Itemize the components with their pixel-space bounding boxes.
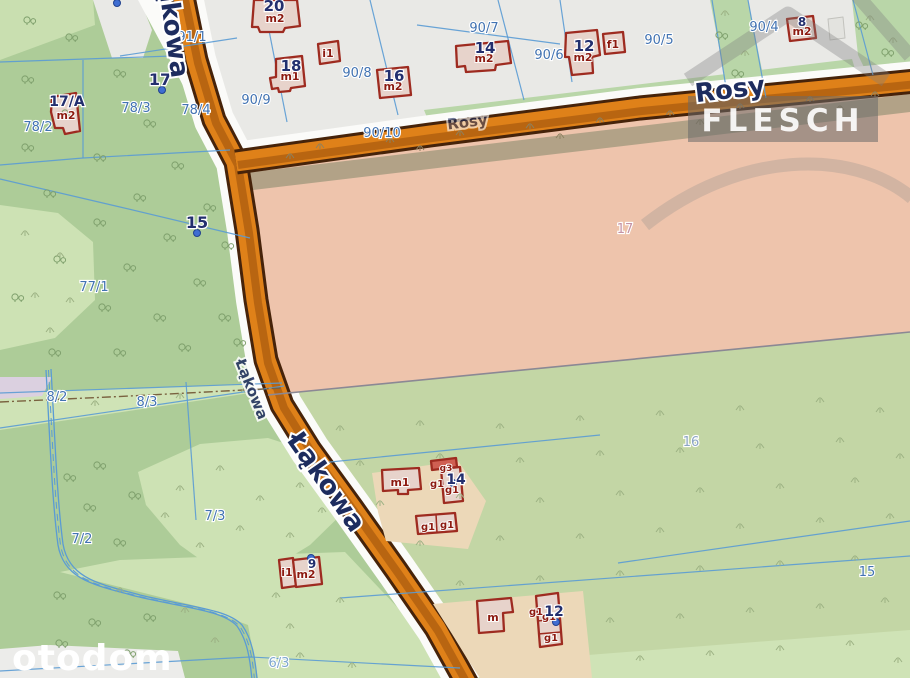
parcel-number-label: 7/2 (72, 532, 93, 547)
building-type-label: g1 (440, 520, 454, 531)
parcel-number-label: 15 (859, 565, 876, 580)
building-type-label: m2 (56, 109, 75, 122)
address-number-label: 16 (384, 67, 405, 85)
parcel-number-label: 78/2 (23, 120, 52, 135)
building-type-label: i1 (322, 47, 333, 60)
parcel-number-label: 8/3 (137, 395, 158, 410)
address-number-label: 18 (281, 57, 302, 75)
parcel-number-label: 77/1 (79, 280, 108, 295)
building-type-label: f1 (607, 38, 619, 51)
parcel-number-label: 8/2 (47, 390, 68, 405)
parcel-number-label: 90/5 (644, 33, 673, 48)
parcel-number-label: 90/4 (749, 20, 778, 35)
parcel-number-label: 78/3 (121, 101, 150, 116)
building-type-label: g1 (430, 479, 444, 490)
building-divider (436, 514, 437, 533)
address-number-label: 17/A (49, 94, 85, 110)
otodom-logo: otodom (12, 638, 173, 678)
flesch-watermark-text: FLESCH (701, 103, 864, 139)
map-canvas: FLESCH91/190/990/890/790/690/590/490/107… (0, 0, 910, 678)
parcel-number-label: 6/3 (269, 656, 290, 671)
building-type-label: i1 (281, 566, 292, 579)
building-type-label: g1 (544, 633, 558, 644)
parcel-number-label: 90/7 (469, 21, 498, 36)
address-number-label: 14 (446, 472, 466, 488)
building-type-label: g1 (421, 522, 435, 533)
address-point-dot (114, 0, 121, 7)
parcel-number-label: 17 (617, 222, 634, 237)
parcel-number-label: 90/8 (342, 66, 371, 81)
address-number-label: 12 (574, 37, 595, 55)
address-number-label: 12 (544, 604, 563, 620)
address-number-label: 15 (186, 213, 208, 232)
address-number-label: 14 (475, 39, 496, 57)
map-screenshot: FLESCH91/190/990/890/790/690/590/490/107… (0, 0, 910, 678)
building-type-label: m1 (390, 476, 409, 489)
parcel-number-label: 90/9 (241, 93, 270, 108)
parcel-number-label: 90/6 (534, 48, 563, 63)
address-number-label: 9 (308, 557, 316, 571)
building-type-label: m (487, 611, 498, 624)
parcel-number-label: 78/4 (181, 103, 210, 118)
parcel-number-label: 90/10 (363, 126, 400, 141)
address-number-label: 8 (798, 15, 806, 29)
parcel-number-label: 7/3 (205, 509, 226, 524)
parcel-number-label: 16 (683, 435, 700, 450)
address-number-label: 20 (264, 0, 285, 15)
